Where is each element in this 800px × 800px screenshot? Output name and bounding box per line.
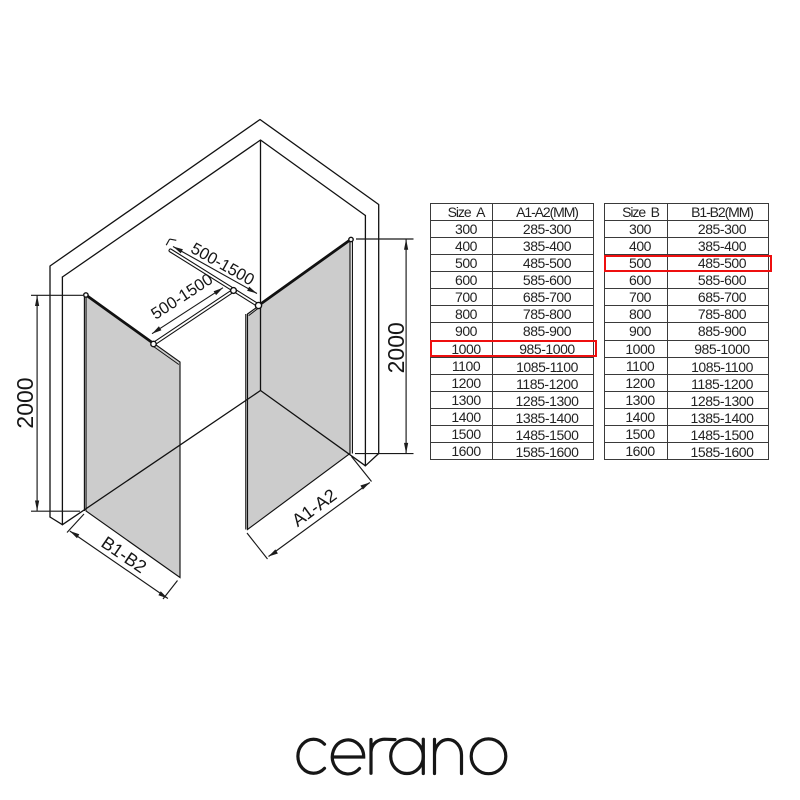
- svg-text:500-1500: 500-1500: [148, 270, 216, 323]
- svg-text:2000: 2000: [383, 322, 409, 373]
- svg-text:2000: 2000: [12, 377, 38, 428]
